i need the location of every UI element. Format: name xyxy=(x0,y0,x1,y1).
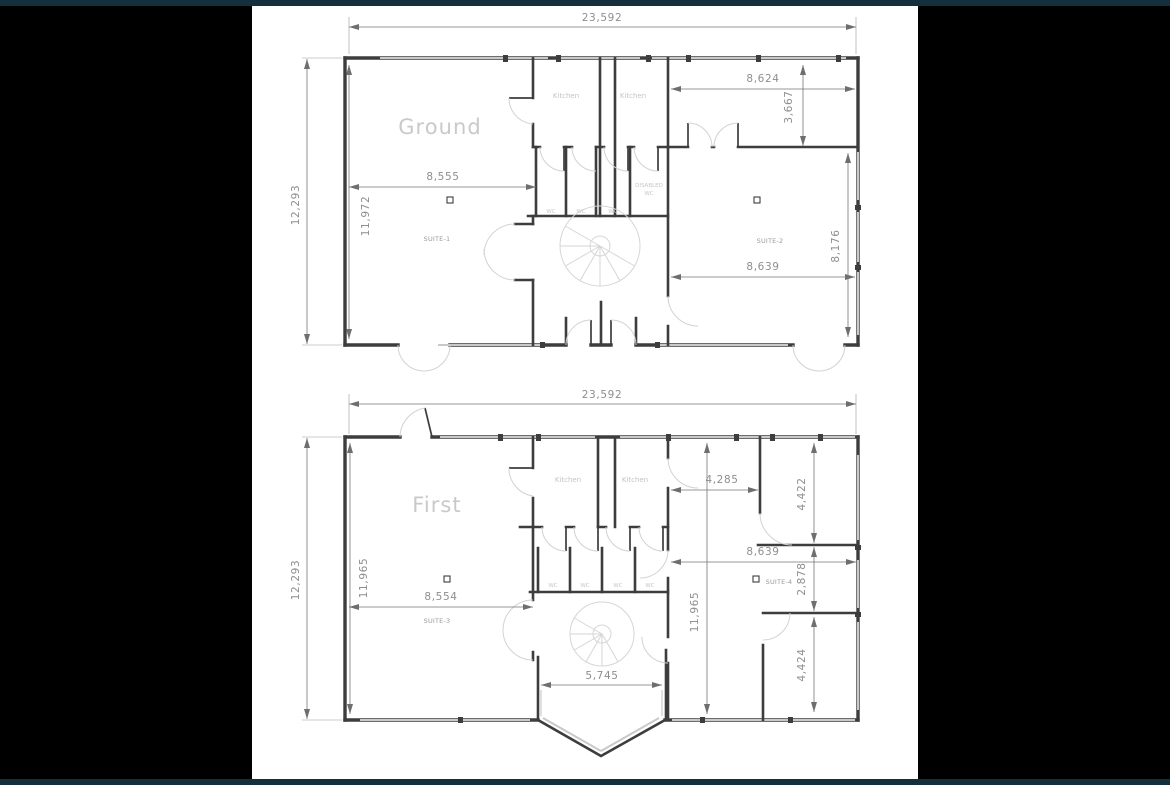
ground-suite2-label: SUITE-2 xyxy=(757,237,784,245)
first-wc4-label: WC xyxy=(645,583,654,589)
first-kitchen-right-label: Kitchen xyxy=(622,476,648,484)
ground-floor-title: Ground xyxy=(398,115,482,139)
first-suite4-label: SUITE-4 xyxy=(766,578,793,586)
ground-top-right-room-height-dim: 3,667 xyxy=(783,90,795,123)
ground-top-right-room-width-dim: 8,624 xyxy=(746,73,779,85)
first-overall-width-dim: 23,592 xyxy=(582,389,623,401)
ground-suite2-height-dim: 8,176 xyxy=(830,229,842,262)
first-kitchen-left-label: Kitchen xyxy=(555,476,581,484)
ground-overall-height-dim: 12,293 xyxy=(290,185,302,226)
first-interior-height-center-dim: 11,965 xyxy=(689,592,701,633)
first-suite3-label: SUITE-3 xyxy=(424,617,451,625)
first-suite4-column-marker xyxy=(753,576,759,582)
ground-overall-width-dim: 23,592 xyxy=(582,12,623,24)
bottom-strip xyxy=(0,779,1170,785)
first-wc1-label: WC xyxy=(548,583,557,589)
first-top-right-room-width-dim: 4,285 xyxy=(705,474,738,486)
first-wc3-label: WC xyxy=(613,583,622,589)
ground-suite2-width-dim: 8,639 xyxy=(746,261,779,273)
ground-wc3-label: WC xyxy=(608,209,617,215)
first-suite4-width-dim: 8,639 xyxy=(746,546,779,558)
first-overall-height-dim: 12,293 xyxy=(290,560,302,601)
ground-wc1-label: WC xyxy=(546,209,555,215)
first-top-right-room-height-dim: 4,422 xyxy=(796,477,808,510)
first-wc2-label: WC xyxy=(580,583,589,589)
ground-wc2-label: WC xyxy=(576,209,585,215)
drawing-viewport: 23,592 12,293 11,972 8,555 8,624 3,667 8… xyxy=(0,0,1170,785)
first-suite4-height-dim: 2,878 xyxy=(796,562,808,595)
first-bottom-right-room-height-dim: 4,424 xyxy=(796,648,808,681)
first-floor-title: First xyxy=(412,493,461,517)
ground-suite1-column-marker xyxy=(447,197,453,203)
ground-kitchen-left-label: Kitchen xyxy=(553,92,579,100)
ground-suite2-column-marker xyxy=(754,197,760,203)
first-suite3-width-dim: 8,554 xyxy=(424,591,457,603)
ground-interior-height-dim: 11,972 xyxy=(360,196,372,237)
floor-plan-canvas: 23,592 12,293 11,972 8,555 8,624 3,667 8… xyxy=(0,0,1170,785)
ground-kitchen-right-label: Kitchen xyxy=(620,92,646,100)
first-suite3-column-marker xyxy=(444,576,450,582)
ground-suite1-width-dim: 8,555 xyxy=(426,171,459,183)
ground-disabled-wc-label-line1: DISABLED xyxy=(635,183,663,189)
top-strip xyxy=(0,0,1170,6)
ground-disabled-wc-label-line2: WC xyxy=(644,191,653,197)
ground-suite1-label: SUITE-1 xyxy=(424,235,451,243)
first-bay-opening-width-dim: 5,745 xyxy=(585,670,618,682)
first-interior-height-left-dim: 11,965 xyxy=(358,558,370,599)
